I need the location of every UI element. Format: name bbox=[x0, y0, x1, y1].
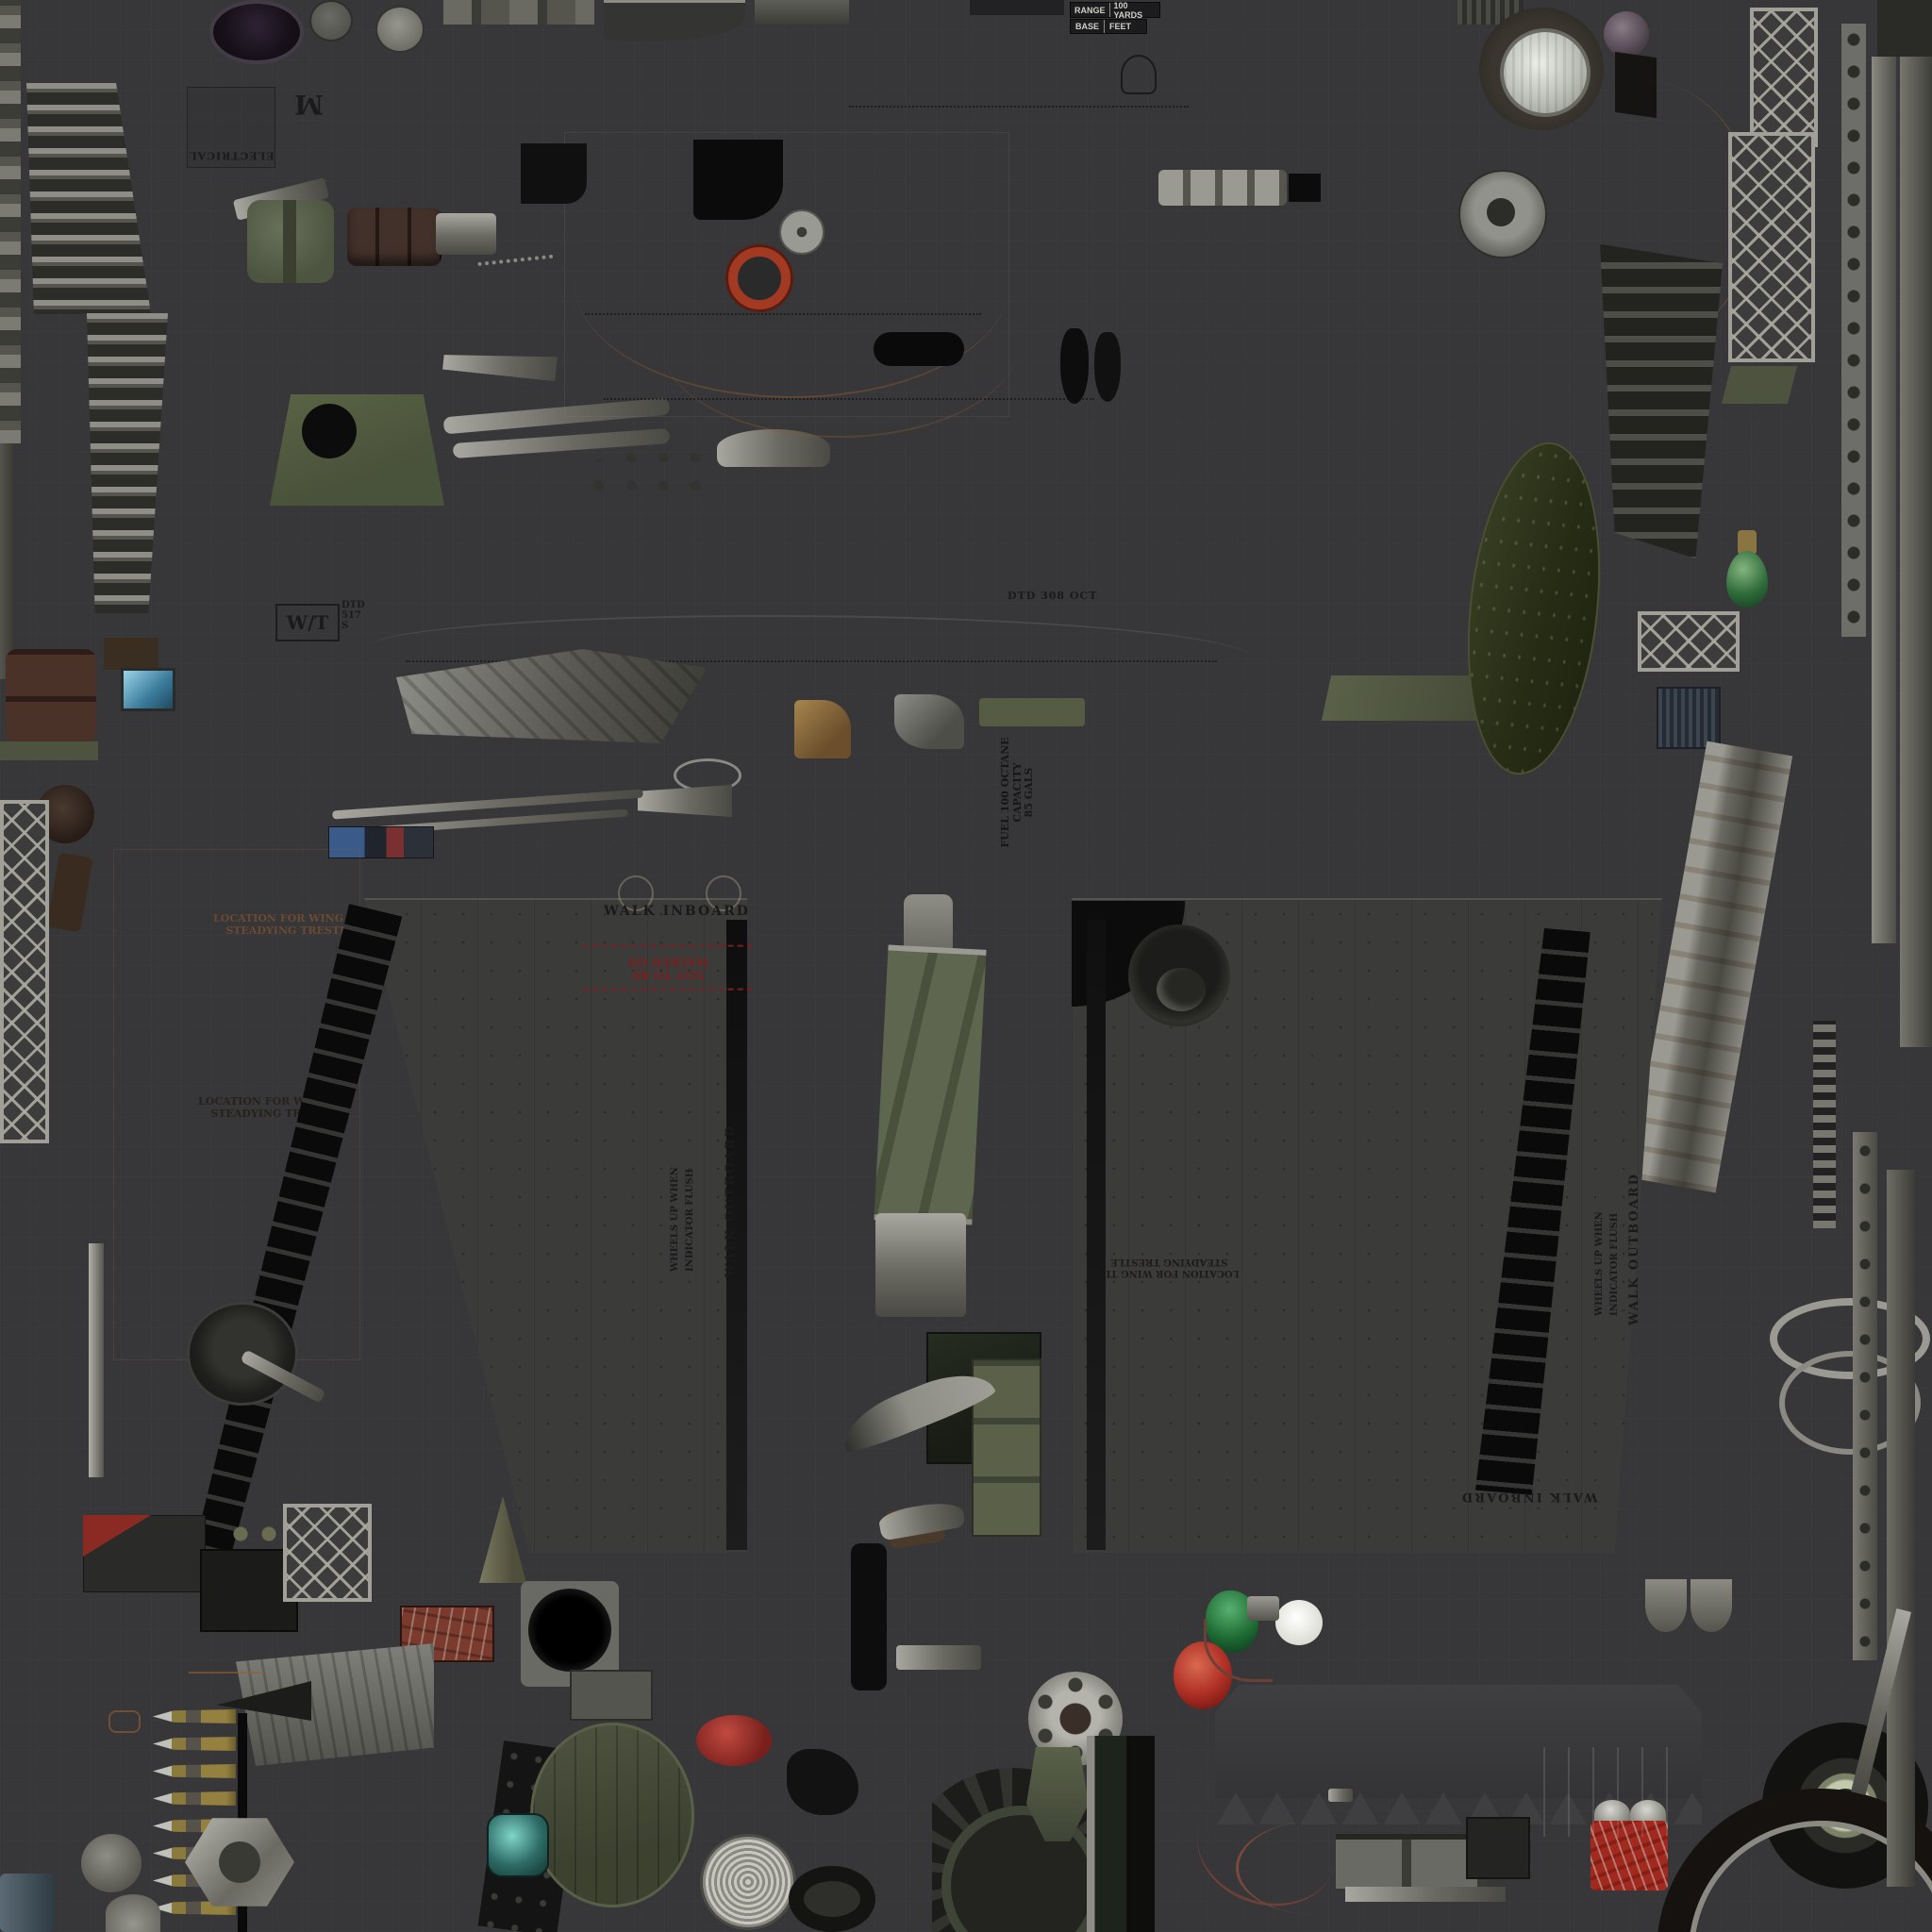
ammo-round bbox=[153, 1709, 236, 1724]
rib-comb-upper bbox=[26, 83, 151, 314]
oval-access-door bbox=[530, 1723, 694, 1907]
right-edge-hole-strip bbox=[1841, 24, 1866, 637]
base-value: FEET bbox=[1105, 22, 1136, 31]
canopy-black-shape bbox=[693, 140, 783, 220]
not-walk-left-line1: NOT TO BE bbox=[583, 968, 753, 981]
red-oval-part bbox=[696, 1715, 772, 1766]
teal-glass-lens bbox=[487, 1813, 549, 1877]
port-cover-disc-2 bbox=[375, 6, 425, 53]
right-corner-block bbox=[1877, 0, 1932, 57]
range-value: 100 YARDS bbox=[1109, 1, 1159, 20]
trestle-stencil-right: LOCATION FOR WING TIP STEADYING TRESTLE bbox=[1099, 1257, 1240, 1278]
ammo-round bbox=[153, 1737, 236, 1751]
hex-nut-center bbox=[219, 1841, 260, 1883]
paint-spec-stencil: DTD 308 OCT bbox=[1008, 591, 1097, 603]
rib-comb-right bbox=[1600, 238, 1723, 558]
gauge-box bbox=[570, 1670, 653, 1721]
left-wing-wheelsup-stencil: WHEELS UP WHEN INDICATOR FLUSH bbox=[670, 1102, 713, 1272]
round-cap-1 bbox=[81, 1834, 142, 1892]
gun-trough-black bbox=[851, 1543, 887, 1690]
white-nav-lamp bbox=[1275, 1600, 1323, 1645]
green-angle-bracket bbox=[1322, 675, 1487, 721]
machined-swirl-disc bbox=[700, 1834, 796, 1930]
mesh-oval-vent bbox=[209, 0, 304, 64]
rivet-row-3 bbox=[849, 106, 1189, 108]
walk-outboard-stencil-right: WALK OUTBOARD bbox=[1628, 1141, 1642, 1325]
dark-channel-extrusion bbox=[1087, 1736, 1155, 1932]
relay-boxes bbox=[1336, 1834, 1487, 1889]
blue-display-screen bbox=[121, 668, 175, 711]
olive-base-plate bbox=[0, 741, 98, 760]
wt-spec-line3: S bbox=[341, 621, 365, 631]
trestle1-line1: LOCATION FOR WING TIP bbox=[213, 913, 368, 925]
rib-comb-lower bbox=[87, 313, 168, 613]
olive-planks bbox=[874, 944, 986, 1224]
right-edge-bar-outer bbox=[1900, 0, 1932, 1047]
wt-spec-line1: DTD bbox=[341, 600, 365, 610]
wt-stencil: W/T bbox=[287, 612, 329, 634]
right-lower-channel bbox=[1853, 1132, 1877, 1660]
blue-steel-cylinder bbox=[0, 1874, 55, 1932]
wing-rib-web bbox=[583, 443, 715, 492]
gray-plate-strip bbox=[755, 0, 849, 25]
olive-wedge-right bbox=[1722, 366, 1797, 404]
fuel-capacity-stencil: FUEL 100 OCTANE CAPACITY 85 GALS bbox=[1000, 736, 1075, 849]
brake-drum-hub bbox=[1487, 198, 1515, 226]
ammo-round bbox=[153, 1764, 236, 1778]
silver-plate-stack bbox=[875, 1213, 966, 1317]
fin-tip-green-panel bbox=[1453, 436, 1615, 781]
trestle-truss-mid-right bbox=[1638, 611, 1740, 672]
copper-elbow-pipe bbox=[794, 700, 851, 758]
left-edge-strip bbox=[0, 0, 21, 443]
gear-leg-fairing-b bbox=[1094, 332, 1121, 402]
ammo-round bbox=[153, 1791, 236, 1806]
rivet-row-2 bbox=[604, 398, 1094, 400]
wt-spec-stencil: DTD 517 S bbox=[341, 600, 365, 631]
olive-strip-part bbox=[979, 698, 1085, 726]
fuselage-stitch-arc-2 bbox=[660, 247, 1019, 438]
walk-inboard-stencil-right: WALK INBOARD bbox=[1460, 1489, 1598, 1503]
right-wing-black-stripe bbox=[1087, 920, 1106, 1550]
landing-lamp-glass bbox=[1500, 28, 1591, 117]
pulley-cup-2 bbox=[1690, 1579, 1732, 1632]
right-lower-bar bbox=[1887, 1170, 1915, 1887]
black-bore-hole bbox=[528, 1589, 611, 1672]
not-walk-stencil-left: NOT TO BE WALKED ON bbox=[583, 945, 753, 991]
tail-wheel-hub bbox=[1157, 968, 1206, 1011]
canvas-strap bbox=[283, 200, 296, 283]
electrical-stencil-box: ELECTRICAL bbox=[187, 87, 275, 168]
wire-plug bbox=[1328, 1789, 1353, 1802]
fuel-line3: 85 GALS bbox=[1024, 736, 1036, 849]
port-cover-disc bbox=[309, 0, 353, 42]
trestle3-line2: STEADYING TRESTLE bbox=[1099, 1257, 1240, 1268]
barrel-stack bbox=[6, 649, 96, 743]
range-label: RANGE bbox=[1071, 6, 1109, 15]
range-placard: RANGE 100 YARDS bbox=[1070, 2, 1160, 18]
leather-pads bbox=[347, 208, 441, 266]
black-panel-sq bbox=[521, 143, 587, 204]
pulley-cup-1 bbox=[1645, 1579, 1687, 1632]
dark-donut-ring bbox=[789, 1866, 875, 1932]
wheels-up-right-line2: INDICATOR FLUSH bbox=[1609, 1146, 1621, 1316]
chain-link-strip bbox=[1813, 1021, 1836, 1228]
intake-oval bbox=[874, 332, 964, 366]
dark-strip-top bbox=[970, 0, 1064, 15]
tail-cone-part bbox=[638, 785, 732, 817]
orange-t-mark bbox=[189, 1672, 264, 1694]
base-placard: BASE FEET bbox=[1070, 19, 1147, 34]
olive-access-panel bbox=[270, 394, 444, 506]
hand-hole-outline bbox=[1121, 55, 1157, 94]
truss-blade bbox=[442, 345, 558, 381]
trestle-truss-top-right bbox=[1750, 8, 1818, 147]
fuel-line1: FUEL 100 OCTANE bbox=[1000, 736, 1012, 849]
trestle-truss-right-2 bbox=[1728, 132, 1815, 362]
not-walk-left-line2: WALKED ON bbox=[583, 955, 753, 968]
olive-panel-hole bbox=[302, 404, 357, 458]
silver-a-frame bbox=[283, 1504, 372, 1602]
relay-silver-strip bbox=[1345, 1887, 1506, 1902]
electrical-stencil: ELECTRICAL bbox=[183, 143, 280, 167]
lamp-plug-fitting bbox=[1247, 1596, 1279, 1621]
steel-elbow-pipe bbox=[894, 694, 964, 749]
silver-strip-part bbox=[896, 1645, 981, 1670]
green-glass-lamp bbox=[1726, 551, 1768, 608]
right-edge-bar bbox=[1872, 57, 1896, 943]
wt-stencil-box: W/T bbox=[275, 604, 340, 641]
left-trestle-truss bbox=[0, 800, 49, 1143]
aileron-outline-part bbox=[604, 0, 745, 41]
trestle3-line1: LOCATION FOR WING TIP bbox=[1099, 1268, 1240, 1279]
dark-square-part bbox=[1466, 1817, 1530, 1879]
texture-atlas-canvas: RANGE 100 YARDS BASE FEET ELECTRICAL M bbox=[0, 0, 1932, 1932]
leather-strap bbox=[46, 852, 92, 932]
rivet-row-1 bbox=[585, 313, 981, 315]
corrugated-block bbox=[1657, 687, 1721, 749]
brown-box bbox=[104, 638, 158, 670]
long-rod bbox=[89, 1243, 104, 1477]
wheels-up-left-line2: INDICATOR FLUSH bbox=[685, 1102, 696, 1272]
orange-rounded-port bbox=[108, 1710, 141, 1733]
cylinder-parts-row bbox=[1158, 170, 1287, 206]
walk-outboard-stencil-left: WALK OUTBOARD bbox=[724, 1098, 739, 1277]
gear-leg-fairing-a bbox=[1060, 328, 1089, 404]
walk-inboard-stencil-left: WALK INBOARD bbox=[604, 904, 750, 919]
wt-spec-line2: 517 bbox=[341, 610, 365, 621]
left-edge-strip-lower bbox=[0, 443, 13, 679]
base-label: BASE bbox=[1071, 22, 1104, 31]
wheels-up-left-line1: WHEELS UP WHEN bbox=[670, 1102, 681, 1272]
small-parts-strip bbox=[443, 0, 594, 25]
black-boot-part bbox=[787, 1749, 858, 1815]
wheels-up-right-line1: WHEELS UP WHEN bbox=[1594, 1146, 1606, 1316]
round-cap-2 bbox=[106, 1894, 160, 1932]
black-box-part bbox=[1289, 174, 1321, 202]
m-mark-stencil: M bbox=[294, 89, 324, 119]
purple-knob bbox=[1604, 11, 1649, 57]
